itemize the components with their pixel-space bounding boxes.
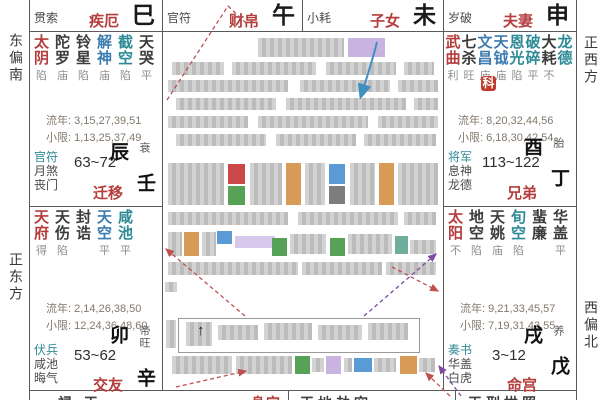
redacted-block [419, 358, 435, 372]
stem-branch-column: 胎 丁酉 [518, 137, 572, 206]
ziwei-chart: 东偏南 正东方 正西方 西偏北 贯索 疾厄 巳 官符 财帛 午 小耗 子女 未 … [0, 0, 600, 400]
palace-cell-mao: 天府得天伤陷封诰天空平咸池平 流年: 2,14,26,38,50 小限: 12,… [30, 207, 161, 390]
star: 华盖平 [550, 210, 571, 257]
compass-label-east: 正东方 [6, 252, 26, 303]
redacted-block [228, 164, 245, 184]
star: 截空陷 [115, 35, 136, 82]
compass-label-west: 正西方 [581, 35, 600, 86]
star: 旬空陷 [508, 210, 529, 257]
redacted-block [329, 186, 345, 204]
liunian-line: 流年: 9,21,33,45,57 [460, 300, 555, 316]
god-triple: 奏书华盖白虎 [448, 343, 472, 385]
redacted-block [184, 232, 199, 256]
compass-label-west-north: 西偏北 [581, 300, 600, 351]
redacted-block [168, 80, 288, 92]
clipped-text: 天刑拱照 [468, 393, 540, 400]
redacted-block [295, 356, 310, 374]
clipped-text: 身宫 [251, 393, 281, 400]
liunian-line: 流年: 8,20,32,44,56 [458, 112, 553, 128]
palace-band-wei: 小耗 子女 未 [303, 0, 442, 31]
redacted-block [235, 236, 275, 248]
redacted-block [168, 116, 248, 128]
palace-name: 疾厄 [89, 10, 119, 31]
star: 天空平 [94, 210, 115, 257]
star: 天哭平 [136, 35, 157, 82]
star: 武曲利 [445, 35, 461, 82]
star: 封诰 [73, 210, 94, 257]
redacted-block [168, 212, 288, 225]
palace-name: 财帛 [229, 10, 259, 31]
star: 破碎平 [525, 35, 541, 82]
redacted-block [172, 356, 232, 374]
star-list: 天府得天伤陷封诰天空平咸池平 [31, 210, 136, 257]
redacted-block [272, 238, 287, 256]
redacted-block [228, 186, 245, 205]
grid-line [162, 0, 163, 390]
star: 太阳不 [445, 210, 466, 257]
star: 蜚廉 [529, 210, 550, 257]
up-arrow-glyph: ↑ [197, 322, 205, 339]
redacted-block [326, 62, 396, 75]
star-list: 太阳不地空陷天姚庙旬空陷蜚廉华盖平 [445, 210, 571, 257]
star: 文昌庙 [477, 35, 493, 82]
star-list: 武曲利七杀旺文昌庙天钺庙恩光陷破碎平大耗不龙德 [445, 35, 573, 82]
redacted-block [354, 358, 372, 372]
star: 天府得 [31, 210, 52, 257]
redacted-block [395, 236, 408, 254]
redacted-block [176, 134, 266, 146]
clipped-text: 天地劫空 [300, 393, 372, 400]
life-stage-label: 胎 [552, 137, 564, 149]
redacted-block [236, 356, 292, 374]
redacted-block [290, 234, 326, 254]
redacted-block [330, 238, 345, 256]
redacted-block [202, 232, 216, 256]
branch-char: 午 [272, 1, 295, 29]
redacted-block [348, 234, 392, 254]
star: 陀罗庙 [52, 35, 73, 82]
palace-band-wu: 官符 财帛 午 [163, 0, 301, 31]
redacted-block [217, 231, 232, 244]
redacted-block [404, 62, 434, 75]
star: 解神庙 [94, 35, 115, 82]
palace-band-shen: 岁破 夫妻 申 [444, 0, 575, 31]
star: 七杀旺 [461, 35, 477, 82]
star: 咸池平 [115, 210, 136, 257]
redacted-block [378, 116, 438, 128]
redacted-block [404, 212, 436, 225]
year-god-label: 小耗 [307, 9, 331, 26]
star: 大耗不 [541, 35, 557, 82]
redacted-block [258, 116, 368, 128]
redacted-block [232, 62, 316, 75]
year-god-label: 贯索 [34, 9, 58, 26]
clipped-bottom-row: 禄 天 身宫 天地劫空 天刑拱照 [30, 391, 576, 400]
redacted-block [410, 240, 436, 254]
redacted-block [286, 163, 301, 205]
redacted-block [302, 262, 382, 275]
stem-branch-column: 养 戊戌 [518, 325, 572, 390]
liunian-line: 流年: 3,15,27,39,51 [46, 112, 141, 128]
redacted-block [286, 98, 406, 110]
liunian-line: 流年: 2,14,26,38,50 [46, 300, 141, 316]
redacted-block [400, 356, 417, 374]
redacted-block [312, 358, 324, 372]
redacted-block [258, 38, 344, 57]
star: 太阴陷 [31, 35, 52, 82]
star: 龙德 [557, 35, 573, 82]
redacted-block [348, 38, 385, 57]
palace-name: 夫妻 [503, 10, 533, 31]
star: 铃星陷 [73, 35, 94, 82]
branch-char: 未 [413, 1, 436, 29]
redacted-block [386, 262, 436, 275]
star: 天姚庙 [487, 210, 508, 257]
redacted-block [172, 62, 224, 75]
year-god-label: 岁破 [448, 9, 472, 26]
star: 天钺庙 [493, 35, 509, 82]
god-triple: 将军息神龙德 [448, 150, 472, 192]
palace-cell-xu: 太阳不地空陷天姚庙旬空陷蜚廉华盖平 流年: 9,21,33,45,57 小限: … [444, 207, 575, 390]
palace-name: 子女 [370, 10, 400, 31]
redacted-block [168, 232, 182, 256]
redacted-block [298, 212, 398, 225]
redacted-block [414, 98, 438, 110]
star-list: 太阴陷陀罗庙铃星陷解神庙截空陷天哭平 [31, 35, 157, 82]
branch-char: 巳 [132, 1, 155, 29]
redacted-block [176, 98, 276, 110]
compass-label-east-south: 东偏南 [6, 33, 26, 84]
redacted-block [168, 163, 224, 205]
redacted-block [250, 163, 282, 205]
redacted-block [379, 163, 394, 205]
redacted-center-box [178, 318, 420, 353]
star: 地空陷 [466, 210, 487, 257]
star: 天伤陷 [52, 210, 73, 257]
life-stage-label: 帝旺 [138, 325, 150, 349]
redacted-block [398, 163, 438, 205]
clipped-text: 禄 天 [58, 393, 102, 400]
redacted-block [300, 80, 390, 92]
redacted-block [276, 134, 356, 146]
life-stage-label: 衰 [138, 142, 150, 154]
god-triple: 伏兵咸池晦气 [34, 343, 58, 385]
grid-line [576, 0, 577, 400]
god-triple: 官符月煞丧门 [34, 150, 58, 192]
sihua-badge: 科 [481, 76, 496, 91]
redacted-block [364, 134, 436, 146]
branch-char: 申 [546, 1, 569, 29]
redacted-block [166, 320, 176, 348]
year-god-label: 官符 [167, 9, 191, 26]
palace-cell-chen: 太阴陷陀罗庙铃星陷解神庙截空陷天哭平 流年: 3,15,27,39,51 小限:… [30, 32, 161, 206]
stem-branch-column: 帝旺 辛卯 [104, 325, 158, 390]
redacted-block [350, 163, 375, 205]
redacted-block [398, 80, 438, 92]
redacted-block [344, 358, 352, 372]
redacted-block [329, 164, 345, 184]
stem-branch-column: 衰 壬辰 [104, 142, 158, 206]
redacted-block [168, 262, 298, 275]
redacted-block [165, 282, 177, 292]
star: 恩光陷 [509, 35, 525, 82]
redacted-block [305, 163, 325, 205]
redacted-block [326, 356, 341, 374]
redacted-block [374, 358, 396, 372]
palace-cell-you: 武曲利七杀旺文昌庙天钺庙恩光陷破碎平大耗不龙德 科 流年: 8,20,32,44… [444, 32, 575, 206]
palace-band-si: 贯索 疾厄 巳 [30, 0, 161, 31]
life-stage-label: 养 [552, 325, 564, 337]
